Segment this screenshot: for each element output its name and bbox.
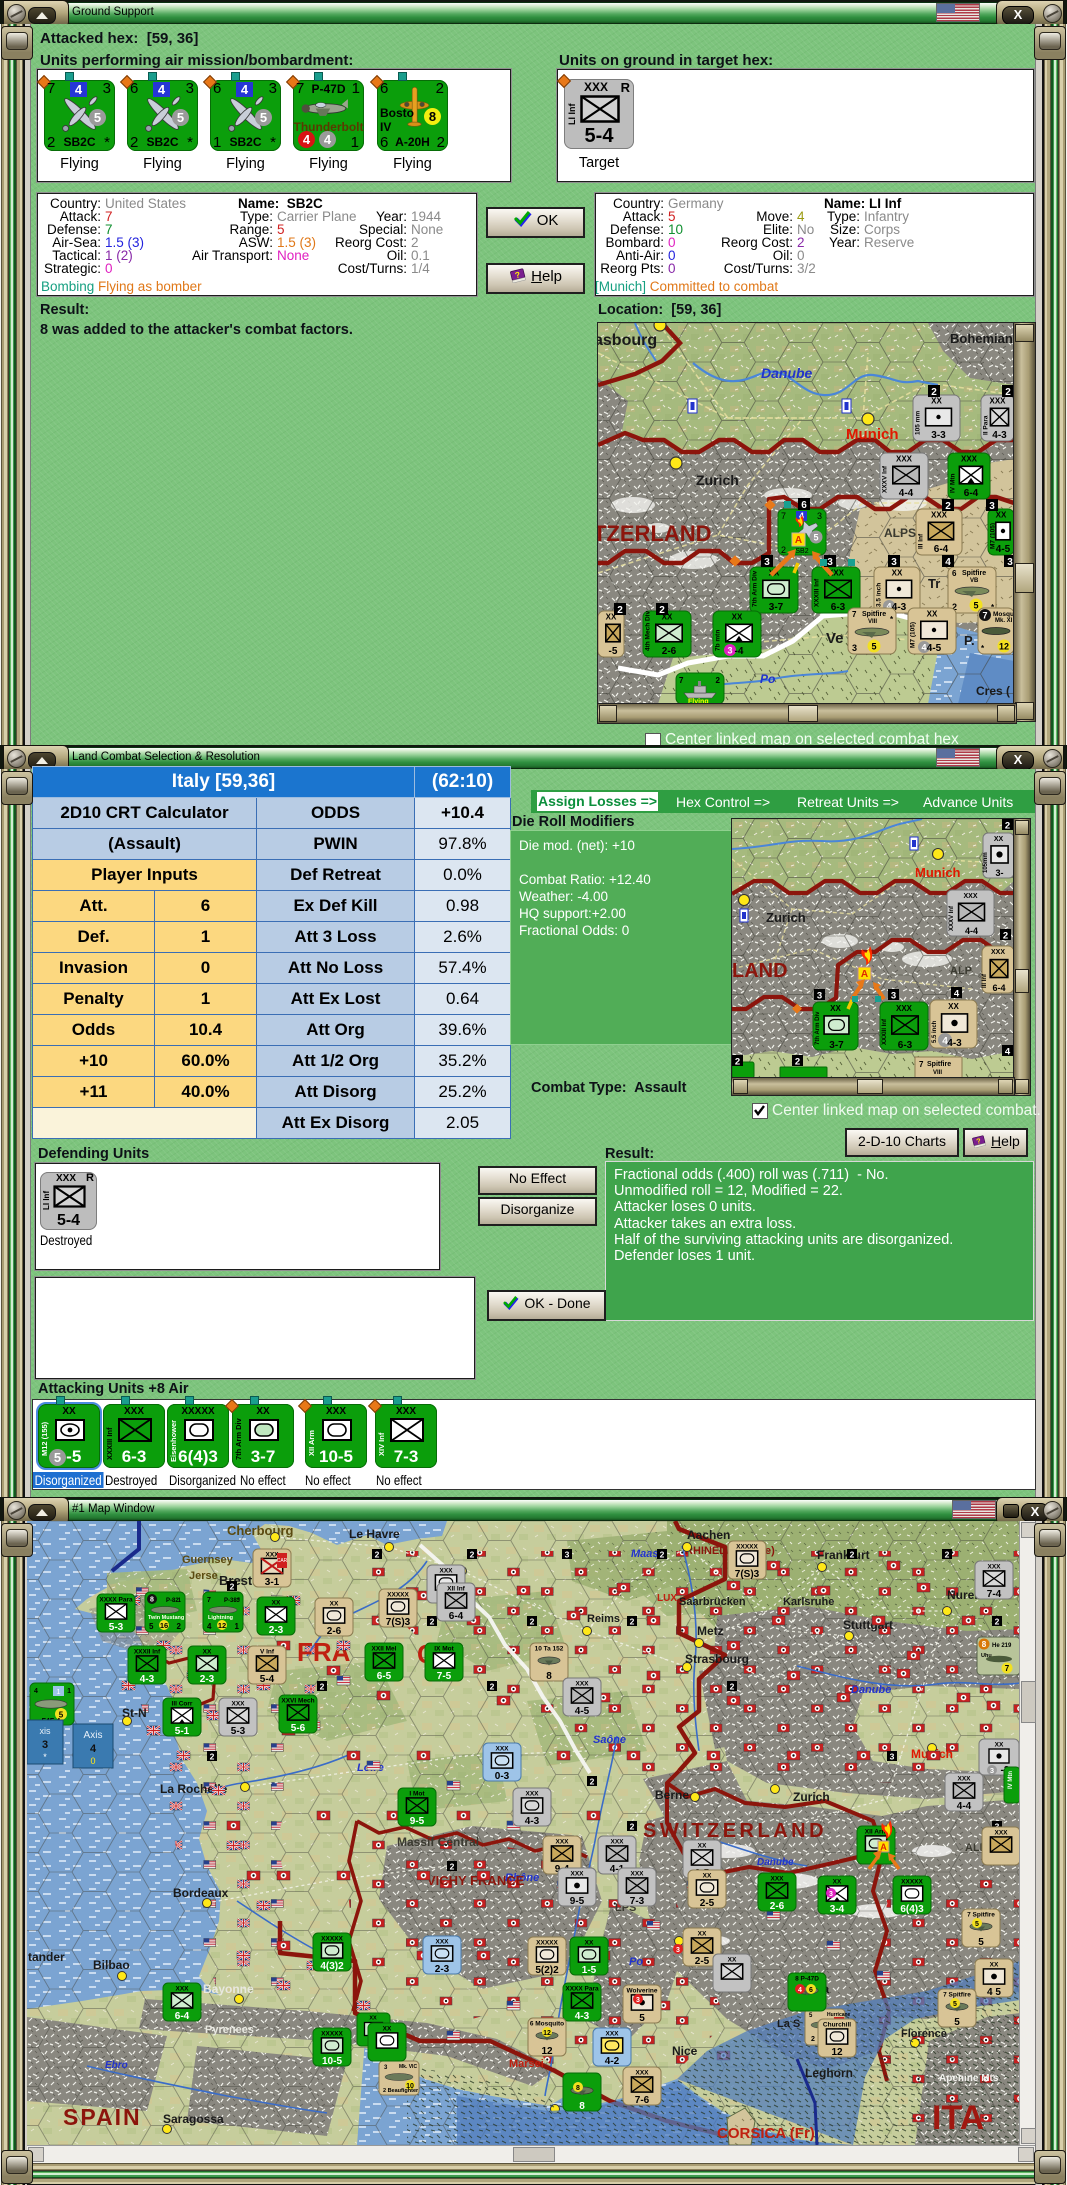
svg-text:Spitfire: Spitfire <box>927 1061 951 1068</box>
svg-text:12: 12 <box>999 642 1009 652</box>
svg-text:XXX: XXX <box>991 949 1005 956</box>
svg-text:2 Beaufighter: 2 Beaufighter <box>383 2088 419 2094</box>
svg-text:5-3: 5-3 <box>231 1726 246 1737</box>
svg-text:Spitfire: Spitfire <box>962 570 986 577</box>
svg-text:XXX: XXX <box>610 1839 624 1846</box>
svg-text:7: 7 <box>852 610 857 619</box>
svg-text:xis: xis <box>40 1726 51 1736</box>
svg-text:-4: -4 <box>735 646 744 657</box>
svg-text:XX: XX <box>383 2026 392 2033</box>
svg-text:5-3: 5-3 <box>109 1622 124 1633</box>
svg-text:2-6: 2-6 <box>662 646 677 657</box>
svg-text:5: 5 <box>978 1937 984 1948</box>
svg-text:0: 0 <box>90 1756 95 1766</box>
svg-text:5: 5 <box>871 642 876 652</box>
svg-text:10-5: 10-5 <box>322 2056 342 2067</box>
svg-text:Marsei: Marsei <box>509 2058 544 2070</box>
svg-text:4: 4 <box>945 557 951 568</box>
svg-text:2: 2 <box>470 1550 475 1560</box>
svg-text:2-6: 2-6 <box>770 1901 785 1912</box>
svg-text:SB2: SB2 <box>795 548 808 555</box>
svg-text:XX: XX <box>203 1649 212 1656</box>
svg-text:3: 3 <box>764 557 770 568</box>
svg-text:7-5: 7-5 <box>437 1671 452 1682</box>
svg-text:7: 7 <box>1005 1664 1010 1673</box>
svg-text:2: 2 <box>490 1682 495 1692</box>
svg-text:8: 8 <box>576 2085 580 2092</box>
svg-text:XXXX Para: XXXX Para <box>565 1986 599 1993</box>
svg-text:XX: XX <box>927 610 938 619</box>
svg-text:XXX: XXX <box>555 1839 569 1846</box>
svg-text:Leghorn: Leghorn <box>805 2066 853 2080</box>
svg-text:XII Inf: XII Inf <box>447 1586 466 1593</box>
svg-text:4-3: 4-3 <box>140 1674 155 1685</box>
svg-text:XX: XX <box>990 1962 999 1969</box>
svg-text:2: 2 <box>659 605 665 616</box>
svg-text:4-5: 4-5 <box>927 643 942 654</box>
svg-text:XXXII Inf: XXXII Inf <box>134 1649 161 1656</box>
svg-text:2: 2 <box>850 1550 855 1560</box>
svg-text:Apenine Mts: Apenine Mts <box>939 2073 999 2084</box>
svg-text:6-4: 6-4 <box>992 983 1005 993</box>
svg-text:3: 3 <box>891 557 897 568</box>
svg-text:V Inf: V Inf <box>260 1649 275 1656</box>
svg-text:5: 5 <box>975 1921 979 1928</box>
svg-text:VICHY FRANCE: VICHY FRANCE <box>427 1873 525 1888</box>
svg-text:2-6: 2-6 <box>327 1626 342 1637</box>
svg-text:XX: XX <box>330 1601 339 1608</box>
svg-text:Cherbourg: Cherbourg <box>227 1523 294 1538</box>
svg-text:8: 8 <box>579 2101 585 2112</box>
svg-text:Munich: Munich <box>915 865 961 880</box>
svg-text:IV Mtn: IV Mtn <box>1008 1771 1014 1789</box>
svg-text:XX: XX <box>369 2016 377 2022</box>
svg-text:ITA: ITA <box>932 2099 984 2137</box>
svg-text:XXXIII Inf: XXXIII Inf <box>814 578 821 607</box>
svg-text:Churchill: Churchill <box>823 2022 851 2029</box>
svg-text:XXX: XXX <box>570 1871 584 1878</box>
svg-text:Tr: Tr <box>928 576 940 591</box>
svg-text:4-3: 4-3 <box>525 1816 540 1827</box>
svg-text:Po: Po <box>629 1956 643 1968</box>
svg-text:Danube: Danube <box>851 1684 891 1696</box>
svg-text:2: 2 <box>795 1057 800 1068</box>
svg-text:Florence: Florence <box>901 2028 947 2040</box>
svg-text:3-1: 3-1 <box>265 1577 280 1588</box>
svg-text:XXX: XXX <box>605 2031 619 2038</box>
svg-text:3: 3 <box>636 1997 640 2004</box>
svg-text:12: 12 <box>831 2047 843 2058</box>
svg-text:Cres (: Cres ( <box>976 684 1010 698</box>
svg-text:2: 2 <box>590 1777 595 1787</box>
svg-text:6: 6 <box>801 500 807 511</box>
svg-text:XXXXX: XXXXX <box>321 2031 343 2038</box>
svg-text:XXX: XXX <box>575 1681 589 1688</box>
svg-text:5-6: 5-6 <box>291 1723 306 1734</box>
svg-text:3: 3 <box>565 1550 570 1560</box>
svg-text:4: 4 <box>207 1622 212 1631</box>
svg-text:6-3: 6-3 <box>831 602 846 613</box>
svg-text:2: 2 <box>1005 821 1010 832</box>
svg-text:XXX: XXX <box>175 1986 189 1993</box>
svg-text:XX: XX <box>994 836 1004 843</box>
svg-text:2: 2 <box>320 1682 325 1692</box>
svg-text:8 P-47D: 8 P-47D <box>795 1976 819 1983</box>
svg-text:4-3: 4-3 <box>575 2011 590 2022</box>
svg-text:Zurich: Zurich <box>793 1790 830 1804</box>
svg-text:5: 5 <box>954 2017 960 2028</box>
svg-text:7: 7 <box>919 1060 924 1069</box>
svg-text:6-3: 6-3 <box>898 1040 913 1051</box>
svg-text:4-3: 4-3 <box>992 430 1007 441</box>
svg-text:4-4: 4-4 <box>899 488 914 499</box>
svg-text:Wolverine: Wolverine <box>627 1988 658 1995</box>
svg-text:XXX: XXX <box>896 455 913 464</box>
svg-text:4(3)2: 4(3)2 <box>320 1961 344 1972</box>
svg-text:4-4: 4-4 <box>957 1801 972 1812</box>
svg-text:2: 2 <box>660 1550 665 1560</box>
svg-text:4: 4 <box>798 1987 802 1994</box>
svg-text:XX: XX <box>830 1004 841 1013</box>
svg-text:II Para: II Para <box>983 415 990 435</box>
svg-text:Zurich: Zurich <box>766 910 806 925</box>
svg-text:2: 2 <box>375 1550 380 1560</box>
svg-text:XXX: XXX <box>963 893 977 900</box>
svg-text:tander: tander <box>28 1950 65 1964</box>
svg-text:6-4: 6-4 <box>175 2011 190 2022</box>
svg-text:Mk. VIC: Mk. VIC <box>399 2064 417 2070</box>
svg-text:3: 3 <box>852 643 857 653</box>
svg-text:XX: XX <box>996 511 1007 520</box>
svg-text:6: 6 <box>952 569 957 578</box>
svg-text:4-2: 4-2 <box>605 2056 620 2067</box>
svg-text:3-3: 3-3 <box>931 430 946 441</box>
svg-text:Spitfire: Spitfire <box>862 611 886 618</box>
svg-text:7: 7 <box>982 611 987 621</box>
svg-text:Bordeaux: Bordeaux <box>173 1886 229 1900</box>
svg-text:2: 2 <box>177 1622 182 1631</box>
svg-text:7: 7 <box>679 676 684 685</box>
svg-text:2-3: 2-3 <box>269 1625 284 1636</box>
svg-text:7(S)3: 7(S)3 <box>735 1569 760 1580</box>
svg-text:2: 2 <box>716 676 721 685</box>
svg-text:XX: XX <box>703 1873 712 1880</box>
svg-text:2: 2 <box>450 1862 455 1872</box>
svg-text:Berne: Berne <box>655 1788 689 1802</box>
svg-text:XXX: XXX <box>896 1004 913 1013</box>
svg-text:12: 12 <box>543 2030 551 2037</box>
svg-text:2: 2 <box>1005 387 1011 398</box>
svg-text:ALPS: ALPS <box>884 526 916 540</box>
svg-text:SWITZERLAND: SWITZERLAND <box>643 1820 827 1842</box>
svg-text:3: 3 <box>727 646 732 656</box>
svg-text:0-3: 0-3 <box>495 1771 510 1782</box>
svg-text:A: A <box>795 535 802 546</box>
svg-text:7: 7 <box>781 511 786 521</box>
svg-text:2-3: 2-3 <box>435 1964 450 1975</box>
svg-text:5.5 inch: 5.5 inch <box>932 1020 938 1043</box>
svg-text:Ebro: Ebro <box>105 2060 128 2071</box>
svg-text:ALP: ALP <box>950 965 972 977</box>
svg-text:3: 3 <box>42 1739 48 1751</box>
svg-text:Jerse: Jerse <box>189 1570 218 1582</box>
svg-text:Ve: Ve <box>826 630 844 647</box>
svg-text:5: 5 <box>953 2001 957 2008</box>
svg-text:2: 2 <box>230 1582 235 1592</box>
svg-text:XXX: XXX <box>957 1776 971 1783</box>
svg-text:7th Arm Div: 7th Arm Div <box>815 1011 821 1045</box>
svg-text:XXX: XXX <box>439 1568 453 1575</box>
svg-text:9-5: 9-5 <box>570 1896 585 1907</box>
svg-text:8: 8 <box>546 1671 552 1682</box>
svg-text:4: 4 <box>1005 1047 1011 1058</box>
svg-text:Saône: Saône <box>593 1734 626 1746</box>
svg-text:I Mot: I Mot <box>409 1791 425 1798</box>
svg-text:7 Spitfire: 7 Spitfire <box>943 1992 971 1999</box>
svg-text:3-7: 3-7 <box>769 602 784 613</box>
svg-text:Mosquit: Mosquit <box>993 611 1014 618</box>
svg-text:XXXXX: XXXXX <box>736 1544 758 1551</box>
svg-text:III Corr: III Corr <box>172 1701 193 1708</box>
svg-text:5: 5 <box>813 533 818 543</box>
svg-text:4: 4 <box>921 643 926 653</box>
svg-text:5-4: 5-4 <box>260 1674 275 1685</box>
svg-text:6-4: 6-4 <box>449 1611 464 1622</box>
svg-text:5: 5 <box>639 2013 645 2024</box>
svg-text:Guernsey: Guernsey <box>182 1554 234 1566</box>
svg-text:12: 12 <box>541 2046 553 2057</box>
svg-text:asbourg: asbourg <box>598 332 657 349</box>
svg-text:4-4: 4-4 <box>965 926 978 936</box>
svg-text:Bayonne: Bayonne <box>203 1982 254 1996</box>
svg-text:XXX: XXX <box>987 1564 1001 1571</box>
svg-text:XXX: XXX <box>495 1746 509 1753</box>
svg-text:4-3: 4-3 <box>947 1038 962 1049</box>
svg-text:4 5: 4 5 <box>987 1987 1001 1998</box>
svg-text:2: 2 <box>781 545 786 555</box>
svg-text:3-7: 3-7 <box>829 1040 844 1051</box>
svg-text:TZERLAND: TZERLAND <box>598 521 712 546</box>
svg-text:2: 2 <box>530 1617 535 1627</box>
svg-text:2-5: 2-5 <box>700 1898 715 1909</box>
svg-text:Karlsruhe: Karlsruhe <box>783 1596 834 1608</box>
svg-text:7: 7 <box>207 1597 211 1604</box>
svg-text:3: 3 <box>827 557 833 568</box>
svg-text:4: 4 <box>34 1688 38 1695</box>
svg-text:CAR: CAR <box>277 1558 288 1564</box>
svg-text:12: 12 <box>218 1621 226 1630</box>
svg-text:XXXXX: XXXXX <box>387 1592 409 1599</box>
svg-text:XXVI Mech: XXVI Mech <box>281 1698 314 1705</box>
svg-text:XXX: XXX <box>630 1871 644 1878</box>
svg-text:III Inf: III Inf <box>918 533 925 549</box>
svg-text:Saarbrücken: Saarbrücken <box>679 1596 746 1608</box>
svg-text:4-5: 4-5 <box>996 544 1011 555</box>
svg-text:IX Mot: IX Mot <box>434 1646 454 1653</box>
svg-text:Stuttgart: Stuttgart <box>843 1618 893 1632</box>
svg-text:2: 2 <box>730 1682 735 1692</box>
svg-text:XX: XX <box>272 1600 281 1607</box>
svg-text:2: 2 <box>811 2036 815 2043</box>
svg-text:5: 5 <box>973 601 978 611</box>
svg-text:XXXIII Inf: XXXIII Inf <box>882 1018 888 1045</box>
svg-text:7-3: 7-3 <box>630 1896 645 1907</box>
svg-text:2: 2 <box>931 387 937 398</box>
svg-text:XXXX Para: XXXX Para <box>99 1597 133 1604</box>
svg-text:SPAIN: SPAIN <box>63 2104 142 2130</box>
svg-text:XXX: XXX <box>231 1701 245 1708</box>
svg-text:XXXXX: XXXXX <box>321 1936 343 1943</box>
svg-text:XXX: XXX <box>435 1939 449 1946</box>
svg-text:VB: VB <box>970 578 979 584</box>
svg-text:10 Ta 152: 10 Ta 152 <box>535 1646 564 1653</box>
svg-text:6-4: 6-4 <box>934 544 949 555</box>
svg-text:5(2)2: 5(2)2 <box>535 1965 559 1976</box>
svg-text:XX: XX <box>728 1957 737 1964</box>
svg-text:4th Mech Div: 4th Mech Div <box>645 611 652 651</box>
svg-text:9-5: 9-5 <box>410 1816 425 1827</box>
svg-text:Metz: Metz <box>697 1624 724 1638</box>
svg-text:5-1: 5-1 <box>175 1726 190 1737</box>
svg-text:2: 2 <box>617 605 623 616</box>
svg-text:3-: 3- <box>995 868 1003 878</box>
svg-text:7-6: 7-6 <box>635 2095 650 2106</box>
svg-text:1: 1 <box>56 1687 60 1696</box>
svg-text:8: 8 <box>982 1640 987 1649</box>
svg-text:Po: Po <box>760 672 775 686</box>
svg-text:6-4: 6-4 <box>964 488 979 499</box>
svg-text:Danube: Danube <box>757 1857 794 1868</box>
svg-text:XXX: XXX <box>961 455 978 464</box>
svg-text:Frankfurt: Frankfurt <box>817 1548 870 1562</box>
svg-text:Saragossa: Saragossa <box>163 2112 224 2126</box>
svg-text:2: 2 <box>945 1550 950 1560</box>
svg-text:XXXV Inf: XXXV Inf <box>949 905 955 931</box>
svg-text:XXX: XXX <box>770 1876 784 1883</box>
svg-text:3.5 inch: 3.5 inch <box>876 583 883 607</box>
svg-text:5: 5 <box>149 1622 154 1631</box>
svg-text:M7 (105): M7 (105) <box>910 622 917 648</box>
svg-text:XX: XX <box>833 1879 842 1886</box>
svg-text:La S: La S <box>777 2018 800 2030</box>
svg-text:A: A <box>861 969 868 980</box>
svg-text:XXXV Inf: XXXV Inf <box>882 465 889 493</box>
svg-text:6 Mosquito: 6 Mosquito <box>530 2021 564 2028</box>
svg-text:4-5: 4-5 <box>575 1706 590 1717</box>
svg-text:6(4)3: 6(4)3 <box>900 1904 924 1915</box>
svg-text:-5: -5 <box>609 646 618 657</box>
svg-text:XXX: XXX <box>994 1830 1008 1837</box>
svg-text:2-5: 2-5 <box>695 1956 710 1967</box>
svg-text:105mm: 105mm <box>983 852 989 873</box>
svg-text:Strasbourg: Strasbourg <box>685 1652 749 1666</box>
svg-text:16: 16 <box>160 1621 168 1630</box>
svg-text:XX: XX <box>995 1742 1004 1749</box>
svg-text:1: 1 <box>235 1622 240 1631</box>
svg-text:7th Arm Div: 7th Arm Div <box>752 570 759 607</box>
svg-text:2: 2 <box>430 1617 435 1627</box>
svg-text:XXX: XXX <box>525 1791 539 1798</box>
svg-text:Aachen: Aachen <box>687 1528 730 1542</box>
svg-text:7-4: 7-4 <box>987 1589 1002 1600</box>
svg-text:XX: XX <box>698 1931 707 1938</box>
svg-text:2: 2 <box>630 1822 635 1832</box>
svg-text:3-4: 3-4 <box>830 1904 845 1915</box>
svg-text:IV Mtn: IV Mtn <box>950 473 957 493</box>
svg-text:Pyrenees: Pyrenees <box>205 2024 254 2036</box>
svg-text:LUX: LUX <box>657 1593 677 1604</box>
svg-text:2: 2 <box>945 501 951 512</box>
svg-text:3: 3 <box>891 991 896 1002</box>
svg-text:Le Havre: Le Havre <box>349 1527 400 1541</box>
svg-text:XXX: XXX <box>989 397 1006 406</box>
svg-text:3: 3 <box>990 1766 994 1775</box>
svg-text:3: 3 <box>817 511 822 521</box>
svg-text:VIII: VIII <box>868 619 877 625</box>
svg-text:3: 3 <box>817 991 822 1002</box>
svg-text:8: 8 <box>150 1597 154 1604</box>
svg-text:*: * <box>43 1752 47 1762</box>
svg-text:Munich: Munich <box>846 426 899 443</box>
svg-text:2: 2 <box>210 1752 215 1762</box>
svg-text:CORSICA (Fr): CORSICA (Fr) <box>717 2125 815 2142</box>
svg-text:4: 4 <box>954 989 960 1000</box>
svg-text:VIII: VIII <box>933 1070 942 1076</box>
svg-text:XX: XX <box>698 1843 707 1850</box>
svg-text:1-5: 1-5 <box>582 1965 597 1976</box>
svg-text:3: 3 <box>989 501 995 512</box>
svg-text:2: 2 <box>735 1057 740 1068</box>
svg-text:XX: XX <box>732 613 743 622</box>
svg-text:6: 6 <box>809 1987 813 1994</box>
svg-text:Bilbao: Bilbao <box>93 1958 130 1972</box>
svg-text:Axis: Axis <box>84 1730 103 1741</box>
svg-text:Nice: Nice <box>672 2044 698 2058</box>
svg-text:XXX: XXX <box>635 2070 649 2077</box>
svg-text:Reims: Reims <box>587 1613 620 1625</box>
svg-text:1: 1 <box>67 1688 71 1695</box>
svg-text:XX: XX <box>892 569 903 578</box>
svg-text:XXII Mel: XXII Mel <box>372 1646 397 1653</box>
svg-text:7(S)3: 7(S)3 <box>386 1617 411 1628</box>
svg-text:LAND: LAND <box>732 960 788 982</box>
svg-text:7b mtn: 7b mtn <box>715 630 722 651</box>
svg-text:2: 2 <box>995 1617 1000 1627</box>
svg-text:3: 3 <box>890 1752 895 1762</box>
svg-text:XX: XX <box>948 1002 959 1011</box>
svg-text:4: 4 <box>90 1743 97 1755</box>
svg-text:P.: P. <box>964 633 975 648</box>
svg-text:Bohemian: Bohemian <box>950 331 1013 346</box>
svg-text:Zurich: Zurich <box>696 472 739 488</box>
svg-text:7 Spitfire: 7 Spitfire <box>967 1912 995 1919</box>
svg-text:Mk. XI: Mk. XI <box>995 618 1013 624</box>
svg-text:XXXXX: XXXXX <box>536 1940 558 1947</box>
svg-text:XX: XX <box>585 1940 594 1947</box>
svg-text:6-5: 6-5 <box>377 1671 392 1682</box>
svg-text:Danube: Danube <box>761 365 813 381</box>
svg-text:Massif Central: Massif Central <box>397 1835 479 1849</box>
svg-text:He 219: He 219 <box>992 1643 1012 1649</box>
svg-text:Maas: Maas <box>631 1548 659 1560</box>
svg-text:3: 3 <box>676 1947 680 1954</box>
svg-text:III Inf: III Inf <box>982 973 988 988</box>
svg-text:2: 2 <box>630 1617 635 1627</box>
svg-text:XXXXX: XXXXX <box>901 1879 923 1886</box>
svg-text:105 mm: 105 mm <box>915 411 922 435</box>
svg-text:2: 2 <box>1003 931 1008 942</box>
svg-text:2-3: 2-3 <box>200 1674 215 1685</box>
